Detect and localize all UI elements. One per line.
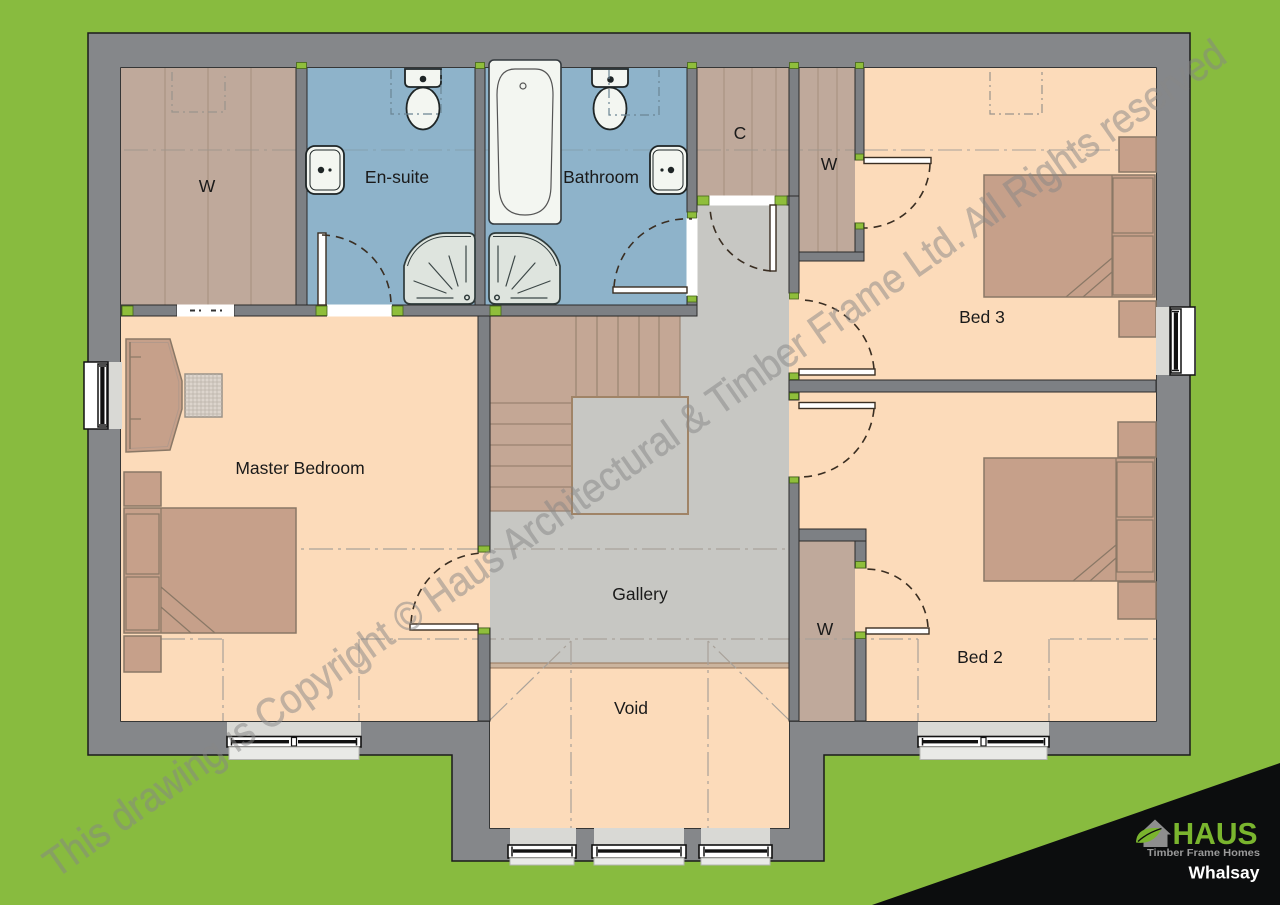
svg-text:W: W [817,619,834,639]
svg-text:W: W [199,176,216,196]
svg-text:Master Bedroom: Master Bedroom [235,458,364,478]
svg-text:Timber Frame Homes: Timber Frame Homes [1147,847,1260,859]
svg-text:W: W [821,154,838,174]
svg-text:Bed 3: Bed 3 [959,307,1005,327]
svg-text:Bathroom: Bathroom [563,167,639,187]
svg-text:C: C [734,123,747,143]
svg-text:Bed 2: Bed 2 [957,647,1003,667]
svg-text:Void: Void [614,698,648,718]
svg-text:Gallery: Gallery [612,584,668,604]
svg-text:Whalsay: Whalsay [1189,863,1260,883]
svg-text:HAUS: HAUS [1173,816,1258,851]
svg-text:En-suite: En-suite [365,167,429,187]
